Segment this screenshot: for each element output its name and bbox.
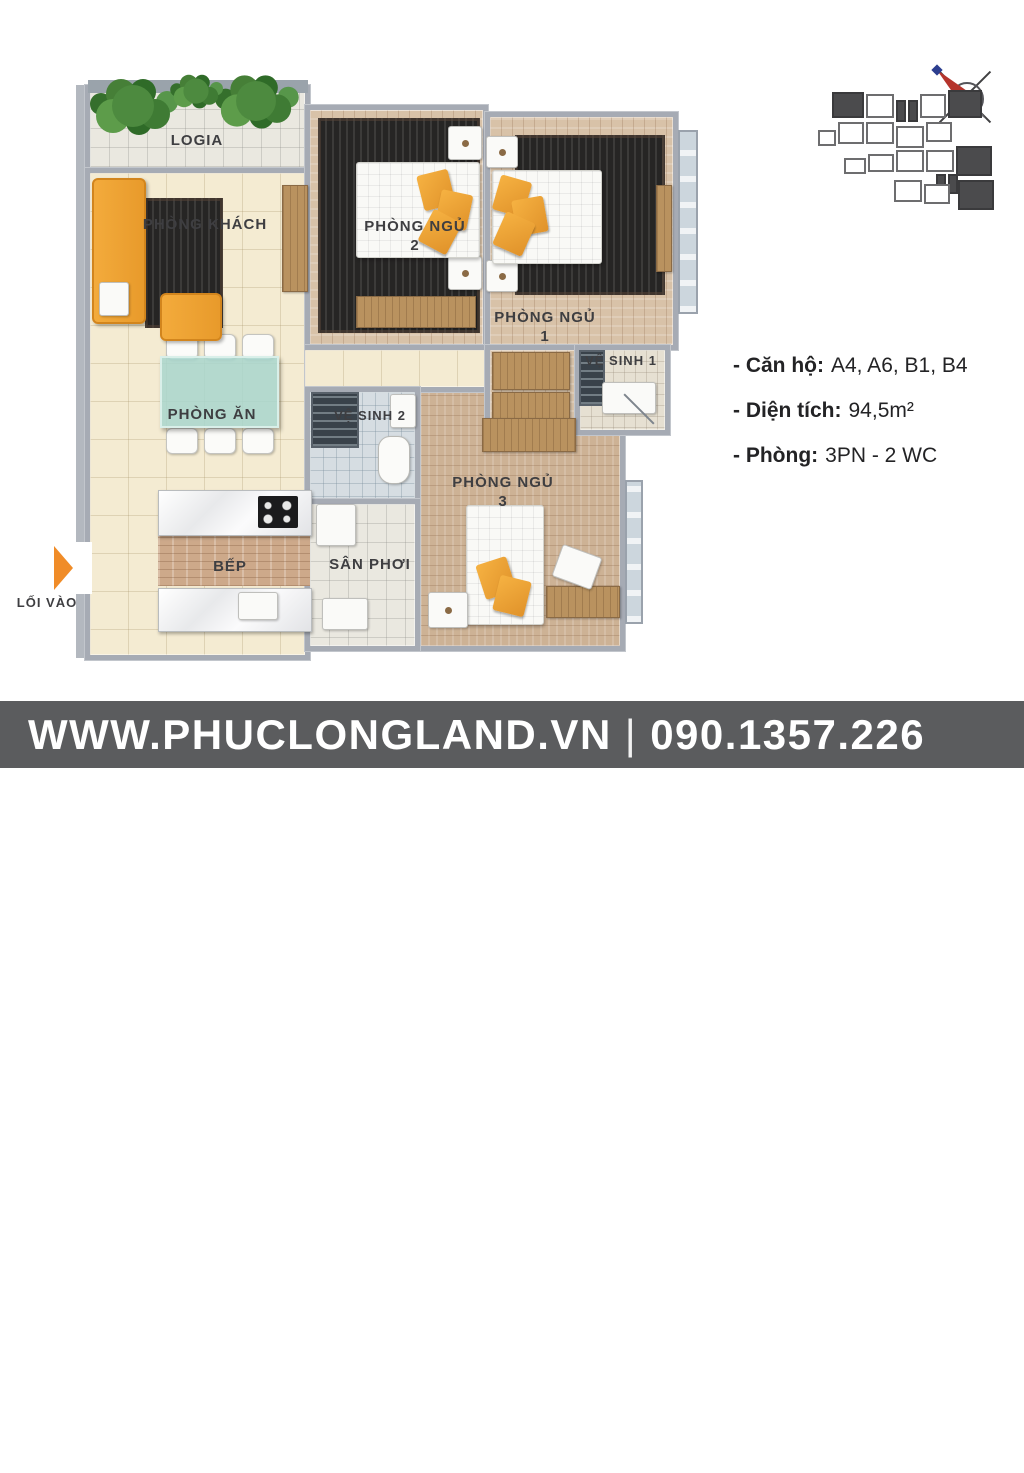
room-label-bedroom1: PHÒNG NGỦ xyxy=(494,309,596,326)
room-label-bedroom3: PHÒNG NGỦ xyxy=(452,474,554,491)
footer-bar: WWW.PHUCLONGLAND.VN|090.1357.226 pL PHÚC… xyxy=(0,701,1024,768)
desk xyxy=(546,586,620,618)
dining-chair xyxy=(166,428,198,454)
keyplan-unit xyxy=(866,94,894,118)
sink xyxy=(238,592,278,620)
phuc-long-logo: pL PHÚC LONG REAL ESTATE xyxy=(940,1405,1014,1473)
keyplan-unit-highlighted xyxy=(956,146,992,176)
plant-icon xyxy=(236,81,276,121)
room-label-living: PHÒNG KHÁCH xyxy=(143,216,267,233)
keyplan-unit xyxy=(818,130,836,146)
keyplan-unit xyxy=(896,150,924,172)
logo-oval-icon: pL xyxy=(945,1398,1008,1456)
footer-website: WWW.PHUCLONGLAND.VN xyxy=(28,711,612,758)
room-label-bathroom1: VỆ SINH 1 xyxy=(585,353,657,368)
plant-icon xyxy=(112,85,154,127)
tv-cabinet xyxy=(282,185,308,292)
info-label-rooms: - Phòng: xyxy=(733,444,818,467)
keyplan-unit xyxy=(838,122,864,144)
entrance-label: LỐI VÀO xyxy=(17,595,77,610)
keyplan-unit xyxy=(924,184,950,204)
keyplan-unit xyxy=(896,126,924,148)
footer-phone: 090.1357.226 xyxy=(650,711,925,758)
window-ledge xyxy=(625,480,643,624)
keyplan-unit-highlighted xyxy=(832,92,864,118)
nightstand xyxy=(428,592,468,628)
bed-bench xyxy=(356,296,476,328)
nightstand xyxy=(448,256,482,290)
room-label-logia: LOGIA xyxy=(171,132,224,149)
wardrobe xyxy=(482,418,576,452)
logo-tagline: REAL ESTATE xyxy=(940,1466,1014,1473)
room-label-drying: SÂN PHƠI xyxy=(329,556,411,573)
logo-monogram: pL xyxy=(965,1417,988,1438)
nightstand xyxy=(448,126,482,160)
footer-contact-text: WWW.PHUCLONGLAND.VN|090.1357.226 xyxy=(28,711,925,759)
washing-machine xyxy=(316,504,356,546)
keyplan xyxy=(815,60,1015,210)
keyplan-core xyxy=(896,100,906,122)
laundry-shelf xyxy=(322,598,368,630)
nightstand xyxy=(486,260,518,292)
flyer-canvas: { "colors": { "accent_orange": "#f2a73d"… xyxy=(0,0,1024,768)
armchair xyxy=(160,293,222,341)
keyplan-unit xyxy=(926,150,954,172)
dining-chair xyxy=(204,428,236,454)
keyplan-unit-highlighted xyxy=(948,90,982,118)
window-ledge xyxy=(678,130,698,314)
keyplan-unit xyxy=(844,158,866,174)
sofa-cushion xyxy=(99,282,129,316)
info-label-units: - Căn hộ: xyxy=(733,354,824,377)
room-label-bedroom1-num: 1 xyxy=(540,328,549,345)
info-line-units: - Căn hộ:A4, A6, B1, B4 xyxy=(733,354,968,378)
keyplan-unit xyxy=(894,180,922,202)
keyplan-unit-highlighted xyxy=(958,180,994,210)
logo-name: PHÚC LONG xyxy=(942,1451,1012,1464)
keyplan-unit xyxy=(868,154,894,172)
keyplan-unit xyxy=(926,122,952,142)
info-line-rooms: - Phòng:3PN - 2 WC xyxy=(733,444,968,468)
room-label-kitchen: BẾP xyxy=(213,558,247,575)
unit-info-panel: - Căn hộ:A4, A6, B1, B4 - Diện tích:94,5… xyxy=(733,354,968,468)
footer-separator: | xyxy=(612,711,650,758)
room-label-bedroom3-num: 3 xyxy=(498,493,507,510)
wardrobe xyxy=(492,352,570,390)
plant-icon xyxy=(183,78,208,103)
info-value-units: A4, A6, B1, B4 xyxy=(831,354,968,377)
dining-chair xyxy=(242,428,274,454)
right-arrow-icon xyxy=(54,546,73,590)
info-line-area: - Diện tích:94,5m² xyxy=(733,399,968,423)
keyplan-core xyxy=(908,100,918,122)
room-label-bedroom2-num: 2 xyxy=(410,237,419,254)
keyplan-unit xyxy=(920,94,946,118)
keyplan-unit xyxy=(866,122,894,144)
room-label-bathroom2: VỆ SINH 2 xyxy=(334,408,406,423)
tv-cabinet xyxy=(656,185,672,272)
room-label-dining: PHÒNG ĂN xyxy=(168,406,257,423)
entry-door-gap xyxy=(74,542,92,594)
stove xyxy=(258,496,298,528)
room-label-bedroom2: PHÒNG NGỦ xyxy=(364,218,466,235)
nightstand xyxy=(486,136,518,168)
kitchen-counter xyxy=(158,588,312,632)
info-value-area: 94,5m² xyxy=(849,399,914,422)
info-label-area: - Diện tích: xyxy=(733,399,842,422)
info-value-rooms: 3PN - 2 WC xyxy=(825,444,937,467)
toilet xyxy=(378,436,410,484)
